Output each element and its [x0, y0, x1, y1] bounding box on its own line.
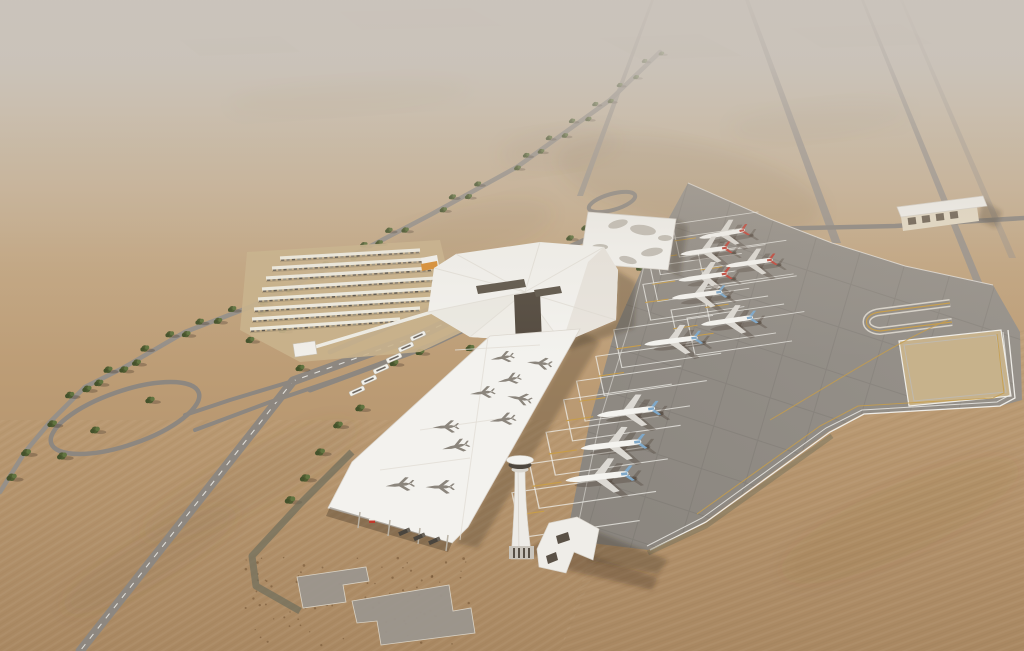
atmospheric-haze	[0, 0, 1024, 651]
horizon-haze	[0, 0, 1024, 651]
scene-svg	[0, 0, 1024, 651]
airport-aerial-render	[0, 0, 1024, 651]
